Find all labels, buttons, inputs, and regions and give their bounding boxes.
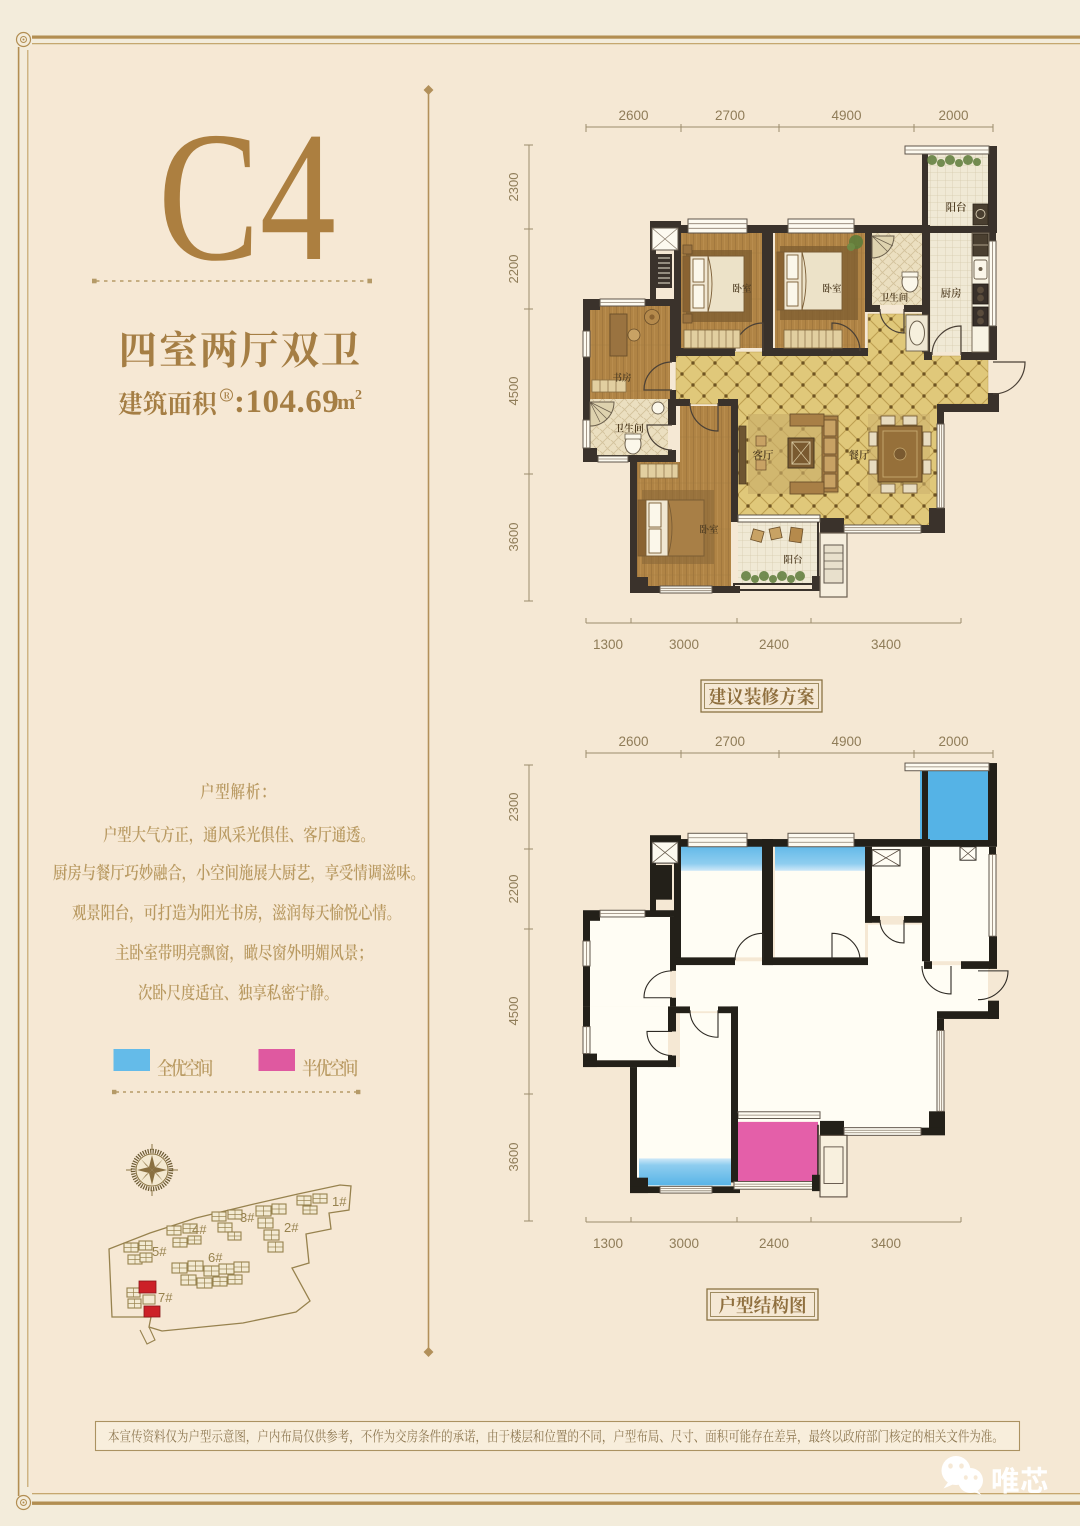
svg-text:2700: 2700 — [715, 734, 745, 749]
svg-text:2200: 2200 — [506, 255, 521, 284]
svg-text:1#: 1# — [332, 1194, 347, 1209]
svg-text:m: m — [337, 389, 355, 414]
svg-text:3400: 3400 — [871, 637, 901, 652]
svg-text:4900: 4900 — [831, 108, 861, 123]
svg-text:2600: 2600 — [618, 108, 648, 123]
svg-text:2000: 2000 — [938, 734, 968, 749]
svg-text:2400: 2400 — [759, 1236, 789, 1251]
svg-text:4500: 4500 — [506, 377, 521, 406]
svg-text:2700: 2700 — [715, 108, 745, 123]
svg-text:2300: 2300 — [506, 173, 521, 202]
svg-text:2#: 2# — [284, 1220, 299, 1235]
svg-text:2: 2 — [355, 388, 362, 403]
svg-text:3#: 3# — [240, 1210, 255, 1225]
svg-text:5#: 5# — [152, 1244, 167, 1259]
svg-text:2400: 2400 — [759, 637, 789, 652]
svg-text:2200: 2200 — [506, 875, 521, 904]
svg-text:3400: 3400 — [871, 1236, 901, 1251]
svg-text:3000: 3000 — [669, 1236, 699, 1251]
svg-text:3000: 3000 — [669, 637, 699, 652]
svg-text:1300: 1300 — [593, 1236, 623, 1251]
svg-text:7#: 7# — [158, 1290, 173, 1305]
svg-text:2300: 2300 — [506, 793, 521, 822]
svg-text:2000: 2000 — [938, 108, 968, 123]
svg-text:3600: 3600 — [506, 1143, 521, 1172]
svg-text:4#: 4# — [192, 1222, 207, 1237]
svg-text:4900: 4900 — [831, 734, 861, 749]
svg-text:3600: 3600 — [506, 523, 521, 552]
svg-text:2600: 2600 — [618, 734, 648, 749]
svg-text:6#: 6# — [208, 1250, 223, 1265]
svg-text:4500: 4500 — [506, 997, 521, 1026]
svg-text::104.69: :104.69 — [234, 384, 339, 420]
svg-text:C4: C4 — [158, 93, 336, 300]
svg-text:1300: 1300 — [593, 637, 623, 652]
